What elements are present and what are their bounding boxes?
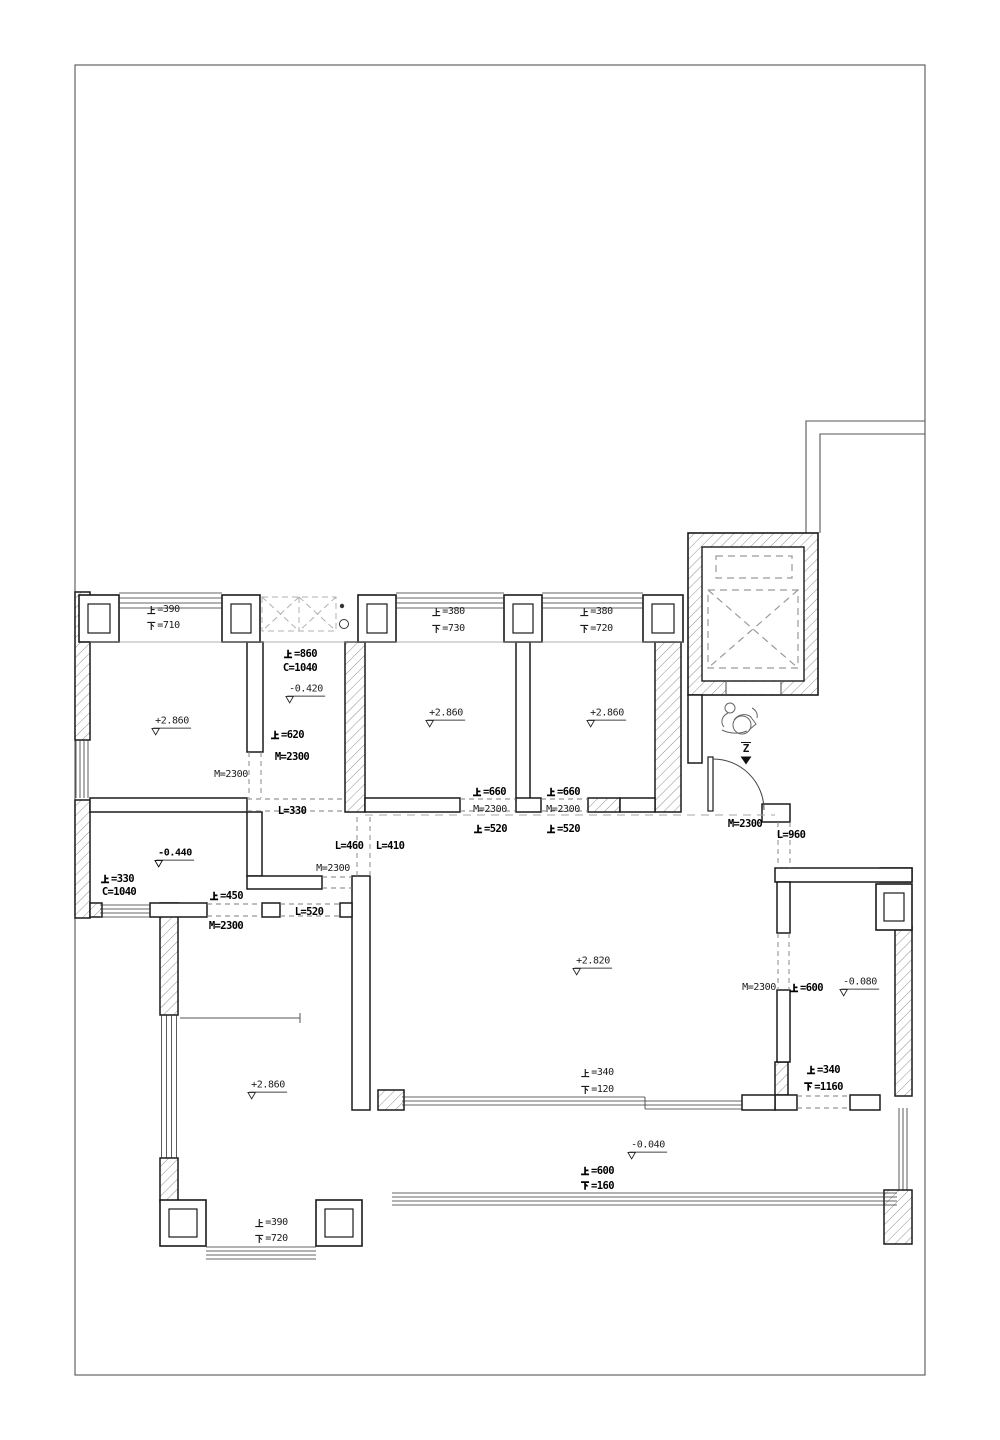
dim-label: =390	[146, 605, 179, 615]
dim-label: =710	[146, 621, 179, 631]
dim-label: =380	[431, 607, 464, 617]
site-boundary	[75, 65, 925, 1375]
dim-label: M=2300	[473, 805, 507, 815]
dim-label: =860	[283, 649, 317, 660]
platform-unit	[262, 597, 336, 631]
walls	[90, 642, 912, 1110]
dim-label: M=2300	[214, 770, 248, 780]
dim-label: =120	[580, 1085, 613, 1095]
dim-label: =660	[546, 787, 580, 798]
dim-label: =330	[100, 874, 134, 885]
elevator-shaft	[688, 533, 818, 695]
dim-label: M=2300	[728, 819, 762, 830]
elevation-label: +2.860	[153, 716, 191, 729]
door-leaf	[708, 757, 713, 811]
dim-label: =380	[579, 607, 612, 617]
dim-label: =1160	[803, 1082, 843, 1093]
elevation-label: +2.860	[249, 1080, 287, 1093]
elevator-door-opening	[726, 682, 781, 694]
entry-direction-marker: Z	[737, 742, 755, 765]
elevation-label: +2.820	[574, 956, 612, 969]
dim-label: L=330	[278, 806, 307, 817]
entry-arrow-icon	[740, 756, 752, 765]
door-swing-arc	[713, 759, 764, 810]
dim-label: M=2300	[546, 805, 580, 815]
entry-door	[708, 757, 764, 811]
elevation-label: -0.040	[629, 1140, 667, 1153]
dim-label: =520	[473, 824, 507, 835]
dim-label: =340	[580, 1068, 613, 1078]
elevation-label: +2.860	[427, 708, 465, 721]
dim-label: C=1040	[102, 887, 136, 898]
entry-mark-text: Z	[741, 742, 752, 755]
dim-label: =160	[580, 1181, 614, 1192]
vent-dot	[340, 604, 344, 608]
person-sketch	[722, 703, 757, 734]
floor-plan: =390=710=380=730=380=720=860C=1040=620M=…	[0, 0, 1000, 1440]
dim-label: =620	[270, 730, 304, 741]
dim-label: =720	[579, 624, 612, 634]
dim-label: =600	[580, 1166, 614, 1177]
dim-label: M=2300	[742, 983, 776, 993]
dim-label: L=460	[335, 841, 364, 852]
dim-label: =520	[546, 824, 580, 835]
dim-label: =340	[806, 1065, 840, 1076]
dim-label: =600	[789, 983, 823, 994]
dim-label: M=2300	[316, 864, 350, 874]
drain-circle	[340, 620, 349, 629]
plan-linework	[0, 0, 1000, 1440]
dim-label: M=2300	[275, 752, 309, 763]
dim-label: =390	[254, 1218, 287, 1228]
elevation-label: -0.420	[287, 684, 325, 697]
dim-label: C=1040	[283, 663, 317, 674]
dim-label: =730	[431, 624, 464, 634]
dim-label: =450	[209, 891, 243, 902]
elevation-label: +2.860	[588, 708, 626, 721]
dim-label: L=410	[376, 841, 405, 852]
dim-label: =720	[254, 1234, 287, 1244]
elevation-label: -0.080	[841, 977, 879, 990]
dim-label: L=520	[295, 907, 324, 918]
dim-label: M=2300	[209, 921, 243, 932]
dim-label: =660	[472, 787, 506, 798]
elevation-label: -0.440	[156, 848, 194, 861]
dim-label: L=960	[777, 830, 806, 841]
